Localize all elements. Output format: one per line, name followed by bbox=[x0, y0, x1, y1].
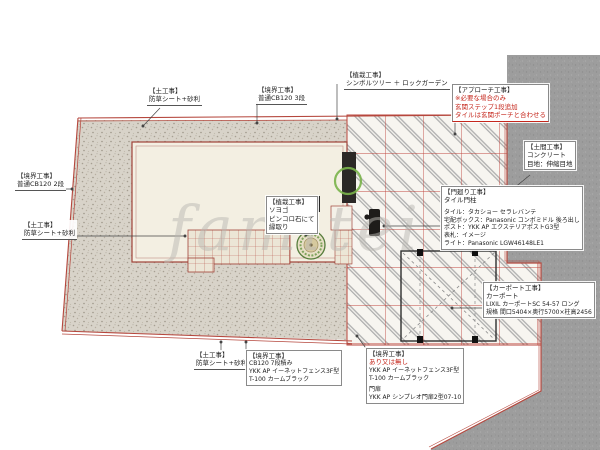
label-carport: 【カーポート工事】 カーポート LIXIL カーポートSC 54-57 ロング … bbox=[483, 282, 595, 318]
label-boundary-bottom-right: 【境界工事】 あり又は無し YKK AP イーネットフェンス3F型 T-100 … bbox=[366, 348, 464, 404]
label-approach: 【アプローチ工事】 ※必要な場合のみ 玄関ステップ1段追加 タイルは玄関ポーチと… bbox=[452, 84, 549, 122]
label-boundary-bottom-left: 【境界工事】 CB120 7段積み YKK AP イーネットフェンス3F型 T-… bbox=[246, 350, 342, 386]
site-plan-page: famitei 【土工事】 防草シート+砂利 【境界工事】 普通CB120 3段… bbox=[0, 0, 600, 450]
symbol-tree bbox=[297, 231, 325, 259]
label-soil-top: 【土工事】 防草シート+砂利 bbox=[147, 86, 202, 106]
label-soil-left: 【土工事】 防草シート+砂利 bbox=[22, 220, 77, 240]
label-boundary-left: 【境界工事】 普通CB120 2段 bbox=[15, 171, 66, 191]
entrance-porch bbox=[331, 206, 352, 230]
label-planting-top: 【植栽工事】 シンボルツリー ＋ ロックガーデン bbox=[344, 70, 450, 90]
label-soil-bottom: 【土工事】 防草シート+砂利 bbox=[194, 350, 249, 370]
label-doma: 【土間工事】 コンクリート 目地：伸縮目地 bbox=[524, 141, 576, 170]
label-gate-works: 【門廻り工事】 タイル門柱 タイル：タカショー セラレバンテ 宅配ボックス：Pa… bbox=[441, 186, 583, 250]
entrance-step-wall bbox=[342, 152, 356, 203]
label-planting-mid: 【植栽工事】 ソヨゴ ピンコロ石にて 縁取り bbox=[266, 196, 318, 234]
label-boundary-top: 【境界工事】 普通CB120 3段 bbox=[256, 85, 307, 105]
